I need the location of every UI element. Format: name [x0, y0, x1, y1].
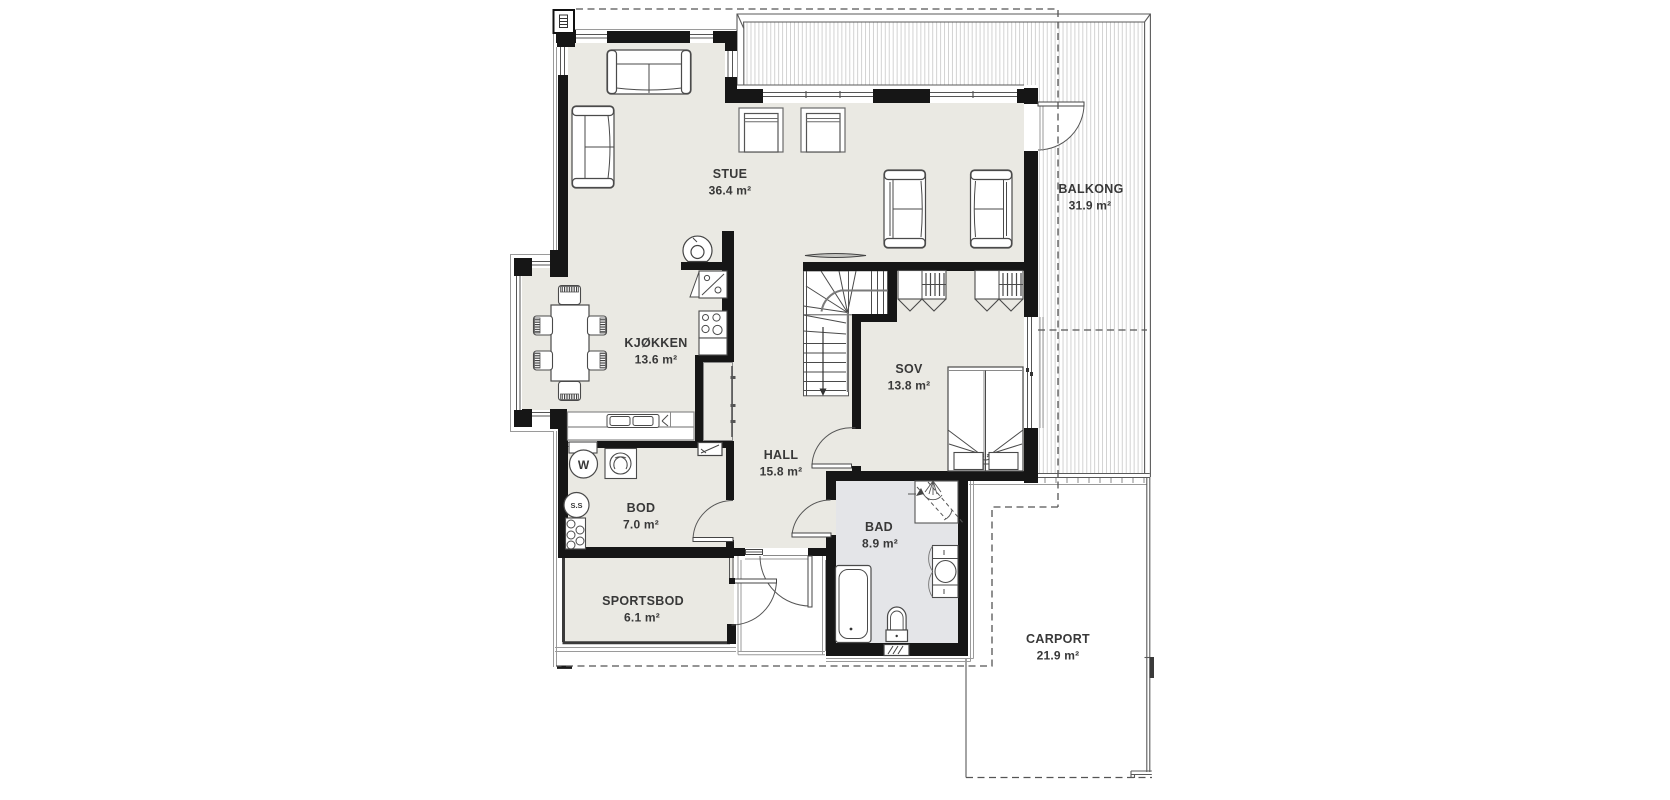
- svg-text:STUE: STUE: [713, 167, 748, 181]
- svg-text:8.9 m²: 8.9 m²: [862, 537, 898, 551]
- svg-text:13.6 m²: 13.6 m²: [635, 353, 678, 367]
- svg-text:BAD: BAD: [865, 520, 893, 534]
- svg-text:BALKONG: BALKONG: [1058, 182, 1123, 196]
- svg-text:KJØKKEN: KJØKKEN: [624, 336, 687, 350]
- svg-text:HALL: HALL: [764, 448, 799, 462]
- svg-text:6.1 m²: 6.1 m²: [624, 611, 660, 625]
- svg-text:13.8 m²: 13.8 m²: [888, 379, 931, 393]
- svg-text:31.9 m²: 31.9 m²: [1069, 199, 1112, 213]
- svg-text:W: W: [578, 458, 590, 472]
- svg-text:36.4 m²: 36.4 m²: [709, 184, 752, 198]
- svg-text:SPORTSBOD: SPORTSBOD: [602, 594, 684, 608]
- svg-text:CARPORT: CARPORT: [1026, 632, 1090, 646]
- svg-text:21.9 m²: 21.9 m²: [1037, 649, 1080, 663]
- svg-text:7.0 m²: 7.0 m²: [623, 518, 659, 532]
- svg-text:S.S: S.S: [570, 501, 582, 510]
- svg-text:15.8 m²: 15.8 m²: [760, 465, 803, 479]
- svg-text:BOD: BOD: [627, 501, 656, 515]
- svg-text:SOV: SOV: [895, 362, 923, 376]
